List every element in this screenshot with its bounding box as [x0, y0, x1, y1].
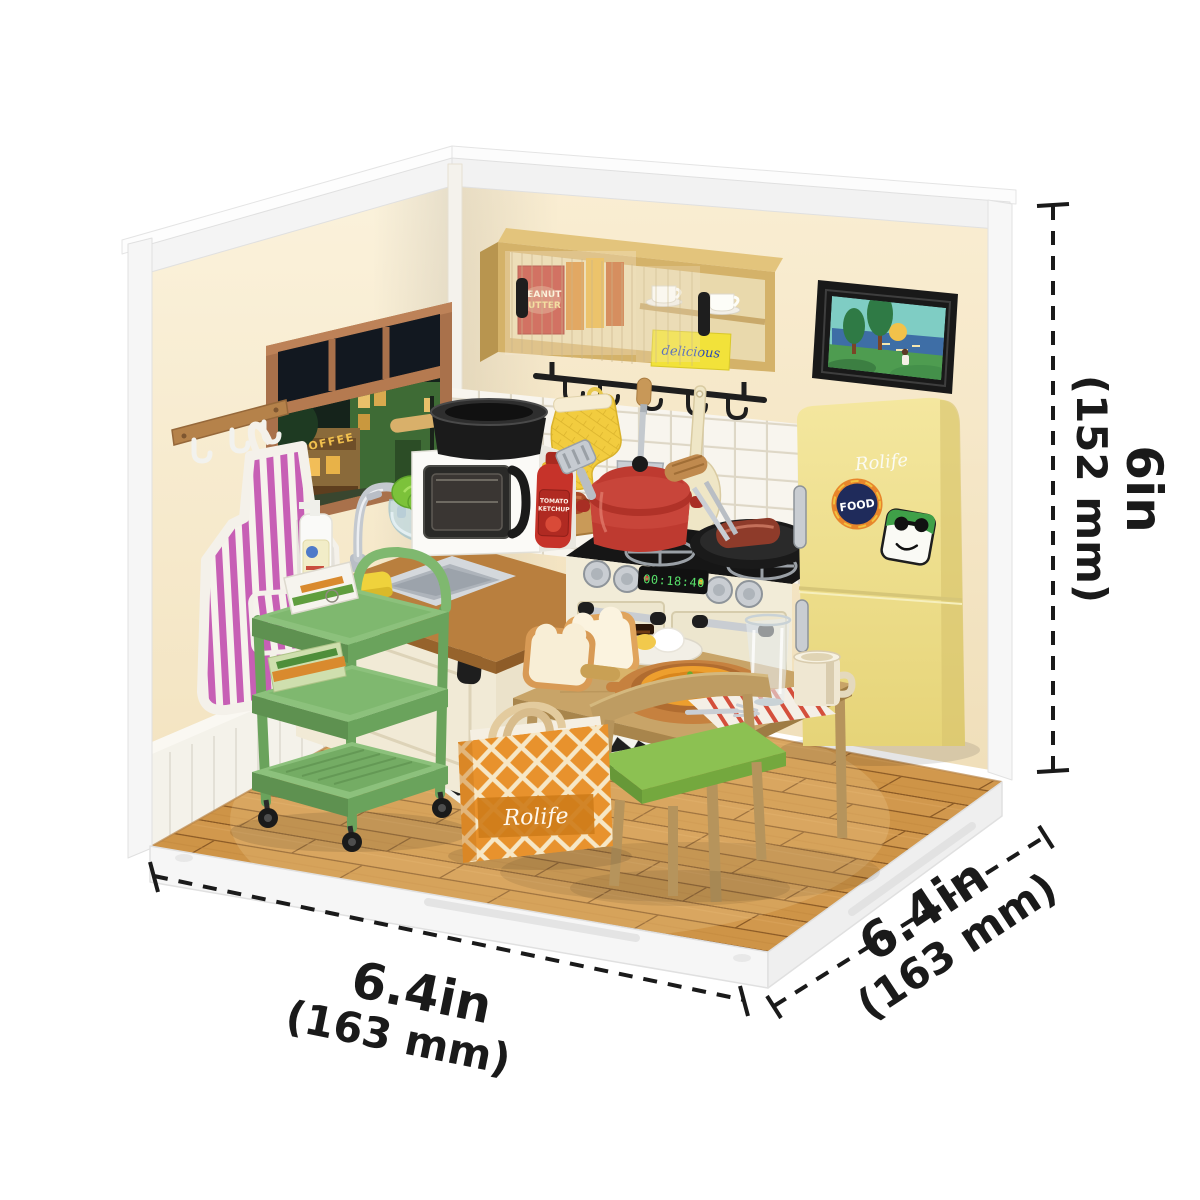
svg-text:TOMATO: TOMATO: [540, 498, 569, 506]
framed-painting: [812, 280, 958, 394]
cabinet-sliding-doors: [505, 251, 710, 366]
svg-text:KETCHUP: KETCHUP: [538, 505, 570, 513]
diorama-illustration: COFFEE PEANUT BUTTER: [0, 0, 1200, 1200]
height-value: 6in: [1115, 445, 1173, 533]
product-dimension-image: COFFEE PEANUT BUTTER: [0, 0, 1200, 1200]
height-dimension: [1037, 204, 1069, 772]
toast-magnet: [880, 507, 936, 566]
rolife-bag: Rolife: [448, 706, 632, 870]
height-metric: (152 mm): [1067, 375, 1116, 603]
bag-logo: Rolife: [502, 804, 569, 831]
stove-display: 00:18:40: [637, 566, 709, 595]
